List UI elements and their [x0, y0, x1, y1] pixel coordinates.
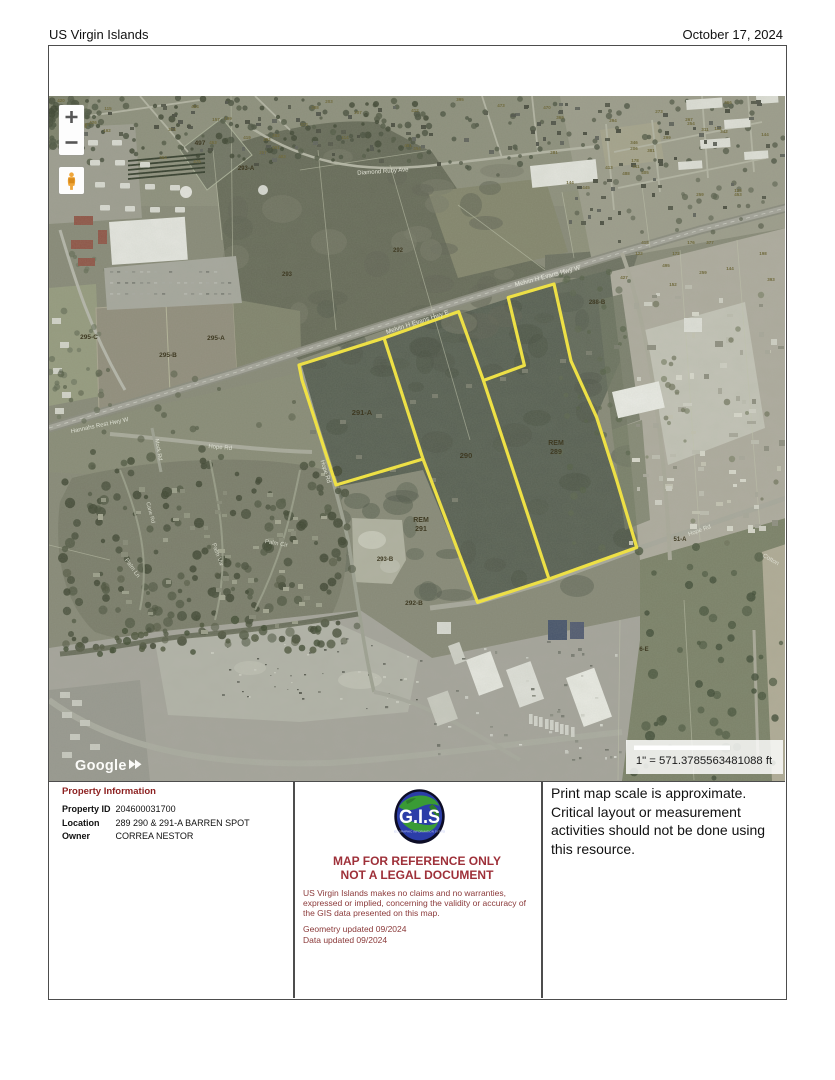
- svg-text:G.I.S: G.I.S: [399, 807, 440, 828]
- svg-text:1" = 571.3785563481088 ft: 1" = 571.3785563481088 ft: [636, 755, 773, 767]
- svg-text:Google: Google: [75, 758, 127, 774]
- svg-text:GEOGRAPHIC INFORMATION SYSTEM: GEOGRAPHIC INFORMATION SYSTEM: [394, 830, 445, 834]
